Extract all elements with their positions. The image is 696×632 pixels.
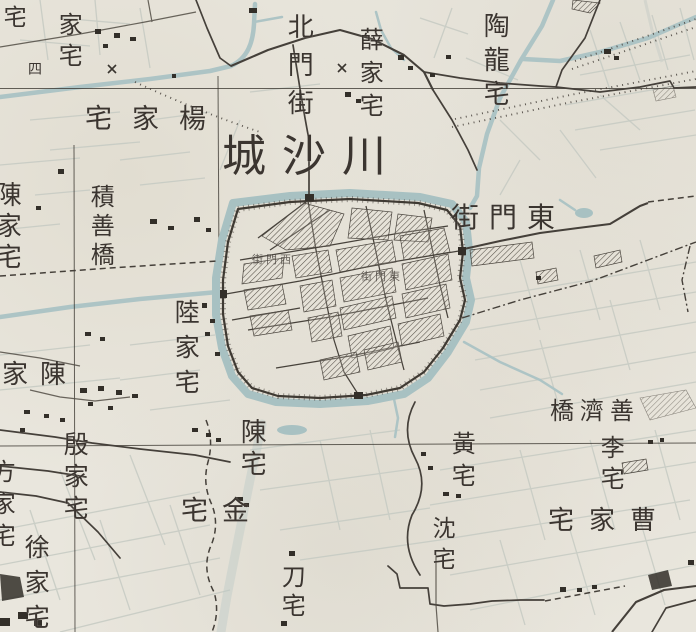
map-artwork	[0, 0, 696, 632]
historical-map-of-chuansha: 城沙川北門街薛家宅陶龍宅家宅宅四宅家楊陳家宅積善橋街門東陸家宅宅家陳殷家宅方家宅…	[0, 0, 696, 632]
